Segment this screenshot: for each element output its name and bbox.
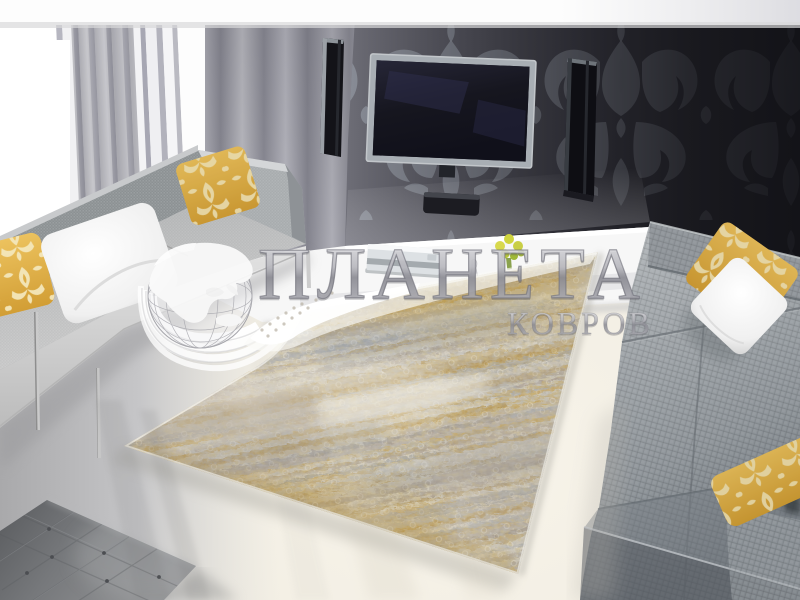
svg-text:ПЛАНЕТА: ПЛАНЕТА xyxy=(258,233,646,314)
svg-text:КОВРОВ: КОВРОВ xyxy=(507,305,653,341)
